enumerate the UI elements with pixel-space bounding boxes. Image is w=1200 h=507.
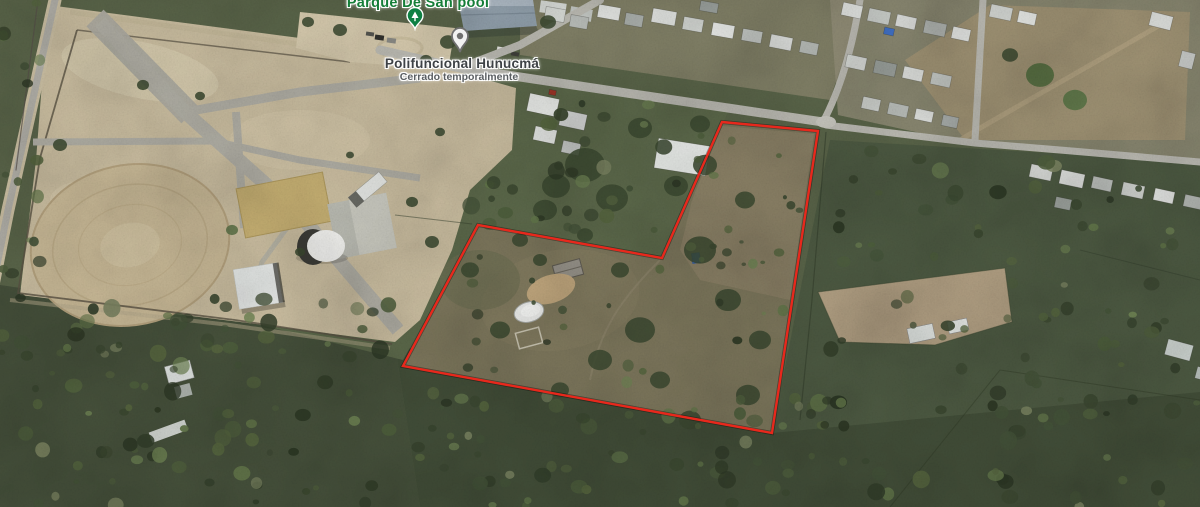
- park-marker: [405, 7, 425, 31]
- satellite-map-view: Parque De San pool Polifuncional Hunucmá…: [0, 0, 1200, 507]
- satellite-grain-texture: [0, 0, 1200, 507]
- satellite-imagery: [0, 0, 1200, 507]
- facility-status-label: Cerrado temporalmente: [400, 71, 518, 83]
- place-pin-icon: [452, 28, 468, 52]
- closed-place-pin: [449, 26, 471, 54]
- facility-label: Polifuncional Hunucmá: [385, 56, 539, 71]
